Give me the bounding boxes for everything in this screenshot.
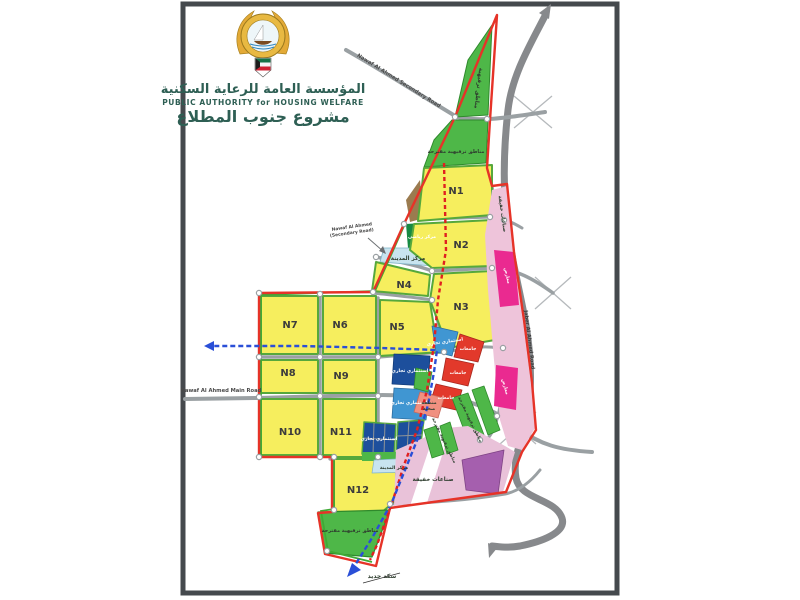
label-n11: N11 (330, 427, 352, 438)
label-n5: N5 (389, 322, 404, 333)
label-recreation-proposed-top: مناطق ترفيهية مقترحة (428, 149, 485, 155)
label-n9: N9 (333, 371, 348, 382)
label-health-1: منطقة (421, 401, 436, 406)
label-n10: N10 (279, 427, 301, 438)
label-commercial-2: استثماري تجاري (392, 369, 429, 374)
label-city-center-2: مركز المدينة (380, 465, 408, 471)
label-health-2: صحية (423, 407, 436, 412)
scanned-map-page: المؤسسة العامة للرعاية السكنية PUBLIC AU… (0, 0, 800, 600)
label-n8: N8 (280, 368, 295, 379)
project-title-arabic: مشروع جنوب المطلاع (176, 107, 349, 126)
label-nawaf-main-road: Nawaf Al Ahmed Main Road (181, 388, 262, 394)
label-n1: N1 (448, 186, 463, 197)
label-commercial-4: استثماري تجاري (361, 437, 398, 442)
label-n3: N3 (453, 302, 468, 313)
label-n7: N7 (282, 320, 297, 331)
org-name-arabic: المؤسسة العامة للرعاية السكنية (161, 82, 366, 97)
label-n12: N12 (347, 485, 369, 496)
label-n4: N4 (396, 280, 411, 291)
label-sports-center: مركز رياضي (408, 234, 436, 240)
label-universities-2: جامعات (450, 371, 467, 376)
svg-text:سكة حديد: سكة حديد (368, 573, 397, 580)
label-universities-3: جامعات (438, 396, 455, 401)
label-light-industry-south: صناعات خفيفة (412, 477, 453, 483)
label-n6: N6 (332, 320, 347, 331)
label-universities-1: جامعات (460, 347, 477, 352)
label-city-center: مركز المدينة (391, 255, 426, 262)
label-recreation-proposed-south: مناطق ترفيهية مقترحة (322, 528, 379, 534)
masterplan-map: المؤسسة العامة للرعاية السكنية PUBLIC AU… (0, 0, 800, 600)
org-name-english: PUBLIC AUTHORITY for HOUSING WELFARE (162, 98, 364, 107)
label-n2: N2 (453, 240, 468, 251)
